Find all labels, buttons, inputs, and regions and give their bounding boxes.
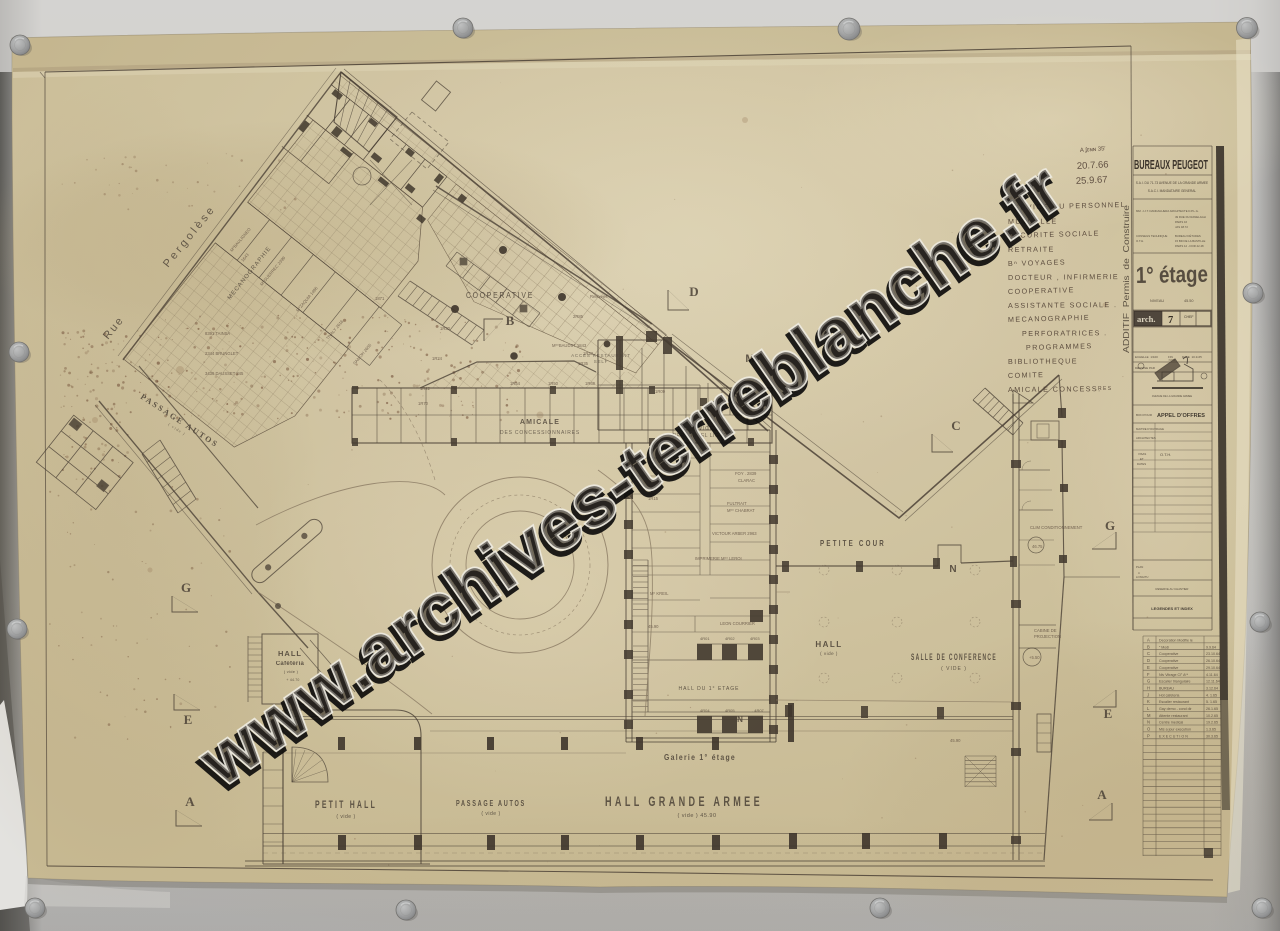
svg-text:8391 TAINSA: 8391 TAINSA bbox=[205, 331, 230, 336]
svg-text:1R70: 1R70 bbox=[418, 401, 429, 406]
svg-text:A: A bbox=[1147, 638, 1150, 643]
svg-text:LEON COURRIER: LEON COURRIER bbox=[720, 621, 755, 626]
svg-text:Centre medical: Centre medical bbox=[1159, 721, 1183, 725]
svg-text:NIVEAU: NIVEAU bbox=[1150, 299, 1164, 303]
svg-text:1R09: 1R09 bbox=[655, 389, 666, 394]
svg-text:Niv Vitrage Cl° Aⁿⁿ: Niv Vitrage Cl° Aⁿⁿ bbox=[1159, 673, 1189, 677]
svg-text:AMICALE: AMICALE bbox=[520, 419, 560, 426]
svg-text:7: 7 bbox=[1168, 315, 1173, 326]
svg-text:arch.: arch. bbox=[1137, 314, 1156, 324]
svg-text:( VIDE ): ( VIDE ) bbox=[941, 666, 967, 672]
svg-text:PLAN: PLAN bbox=[1136, 565, 1143, 569]
svg-text:A: A bbox=[1097, 787, 1107, 802]
svg-text:CHEF: CHEF bbox=[1184, 315, 1194, 319]
svg-text:CONSEILS TECHNIQUE: CONSEILS TECHNIQUE bbox=[1136, 234, 1167, 238]
svg-text:H: H bbox=[1147, 686, 1150, 691]
svg-text:PETITE COUR: PETITE COUR bbox=[820, 538, 886, 548]
svg-text:G: G bbox=[181, 580, 191, 595]
svg-text:CLIM CONDITIONNEMENT: CLIM CONDITIONNEMENT bbox=[1030, 525, 1083, 530]
svg-text:M⁰⁰BAUDST 1843: M⁰⁰BAUDST 1843 bbox=[552, 343, 587, 348]
svg-text:1.3.65: 1.3.65 bbox=[1206, 728, 1216, 732]
svg-text:BUREAUX PEUGEOT: BUREAUX PEUGEOT bbox=[1134, 158, 1208, 172]
svg-text:( vide ): ( vide ) bbox=[820, 651, 838, 656]
svg-text:PROJECTION: PROJECTION bbox=[1034, 634, 1061, 639]
svg-text:LONGITU: LONGITU bbox=[1136, 575, 1148, 579]
svg-text:1R30: 1R30 bbox=[440, 326, 451, 331]
svg-text:IMPRIMERIE M⁰⁰ LEROI: IMPRIMERIE M⁰⁰ LEROI bbox=[695, 556, 742, 561]
svg-text:Hot cafeteria: Hot cafeteria bbox=[1159, 693, 1179, 697]
svg-text:PERFORATRICES .: PERFORATRICES . bbox=[1022, 328, 1108, 338]
svg-text:″ Modi: ″ Modi bbox=[1159, 645, 1169, 649]
svg-text:M⁰⁰ CHABRAT: M⁰⁰ CHABRAT bbox=[727, 508, 755, 513]
svg-text:PROGRAMMES: PROGRAMMES bbox=[1026, 341, 1093, 352]
svg-text:DATES: DATES bbox=[1137, 462, 1146, 466]
svg-text:49 RUE DU RANELAGH: 49 RUE DU RANELAGH bbox=[1175, 215, 1206, 219]
svg-text:N: N bbox=[737, 715, 743, 724]
svg-text:4R04: 4R04 bbox=[700, 708, 710, 713]
svg-text:26.10.64: 26.10.64 bbox=[1206, 659, 1220, 663]
svg-text:4. 1.65: 4. 1.65 bbox=[1206, 693, 1217, 697]
svg-text:FULTRAIT: FULTRAIT bbox=[727, 501, 747, 506]
svg-text:FOY . 2839: FOY . 2839 bbox=[735, 471, 757, 476]
svg-text:BUREAU DÉTUDES: BUREAU DÉTUDES bbox=[1175, 233, 1201, 238]
svg-text:19.2.65: 19.2.65 bbox=[1206, 721, 1218, 725]
svg-text:HALL: HALL bbox=[278, 649, 302, 658]
svg-text:45.90: 45.90 bbox=[648, 624, 659, 629]
svg-text:G: G bbox=[1105, 518, 1115, 533]
svg-text:1° étage: 1° étage bbox=[1136, 261, 1208, 288]
svg-text:RES: RES bbox=[1098, 386, 1112, 392]
svg-text:5. 1.65: 5. 1.65 bbox=[1206, 700, 1217, 704]
svg-text:E: E bbox=[184, 712, 193, 727]
svg-text:AMICALE CONCESS.: AMICALE CONCESS. bbox=[1008, 384, 1102, 394]
svg-text:15 BD DE LA BASTILLE: 15 BD DE LA BASTILLE bbox=[1175, 239, 1205, 243]
svg-text:B: B bbox=[506, 313, 515, 328]
svg-text:C: C bbox=[1147, 651, 1150, 656]
svg-text:ASSISTANTE SOCIALE .: ASSISTANTE SOCIALE . bbox=[1008, 300, 1117, 310]
svg-text:Escalier restaurant: Escalier restaurant bbox=[1159, 700, 1189, 704]
svg-text:M: M bbox=[1147, 713, 1151, 718]
svg-text:Relevées: Relevées bbox=[590, 294, 607, 299]
svg-text:Cooperative: Cooperative bbox=[1159, 652, 1178, 656]
svg-text:4.11.64: 4.11.64 bbox=[1206, 673, 1218, 677]
svg-text:S.A.C.I. MANDATAIRE GENERAL: S.A.C.I. MANDATAIRE GENERAL bbox=[1148, 189, 1197, 193]
svg-text:Cooperative: Cooperative bbox=[1159, 666, 1178, 670]
svg-text:PARIS 16: PARIS 16 bbox=[1175, 220, 1188, 224]
svg-text:4R01: 4R01 bbox=[700, 636, 710, 641]
svg-text:( vide ): ( vide ) bbox=[336, 814, 355, 820]
svg-text:Galerie 1° étage: Galerie 1° étage bbox=[664, 753, 736, 762]
svg-text:BUREAU: BUREAU bbox=[1159, 687, 1174, 691]
svg-text:( vide ): ( vide ) bbox=[481, 811, 500, 817]
svg-text:1R24: 1R24 bbox=[432, 356, 443, 361]
svg-text:45.50: 45.50 bbox=[1184, 299, 1194, 303]
svg-text:4R02: 4R02 bbox=[725, 636, 735, 641]
svg-text:20.7.66: 20.7.66 bbox=[1077, 159, 1109, 172]
svg-text:PARIS 12 - DOR 42.48: PARIS 12 - DOR 42.48 bbox=[1175, 244, 1204, 248]
svg-text:G: G bbox=[1147, 679, 1150, 684]
svg-text:COOPERATIVE: COOPERATIVE bbox=[1008, 285, 1075, 296]
svg-text:MAITRE D’OUVRAGE: MAITRE D’OUVRAGE bbox=[1136, 427, 1164, 431]
svg-text:K: K bbox=[1147, 699, 1150, 704]
svg-text:HALL GRANDE ARMEE: HALL GRANDE ARMEE bbox=[605, 794, 763, 809]
svg-text:D: D bbox=[1147, 658, 1150, 663]
svg-text:Attente restaurant: Attente restaurant bbox=[1159, 714, 1188, 718]
svg-text:30.3.65: 30.3.65 bbox=[1206, 734, 1218, 738]
svg-text:COMITE: COMITE bbox=[1008, 370, 1045, 380]
svg-text:46.75: 46.75 bbox=[1032, 544, 1043, 549]
svg-text:DOCTEUR , INFIRMERIE: DOCTEUR , INFIRMERIE bbox=[1008, 272, 1119, 282]
svg-text:3.12.64: 3.12.64 bbox=[1206, 687, 1218, 691]
svg-text:Escalier triangulaire: Escalier triangulaire bbox=[1159, 680, 1191, 684]
svg-text:SELF: SELF bbox=[594, 359, 608, 364]
svg-text:ACCES RESTAURANT: ACCES RESTAURANT bbox=[571, 353, 631, 358]
svg-text:S.A.I. DU 71-73 AVENUE DE LA G: S.A.I. DU 71-73 AVENUE DE LA GRANDE ARME… bbox=[1136, 181, 1208, 185]
svg-text:PASSAGE AUTOS: PASSAGE AUTOS bbox=[456, 799, 526, 808]
svg-text:P: P bbox=[1147, 733, 1150, 738]
svg-text:ET: ET bbox=[1140, 457, 1144, 461]
svg-text:F: F bbox=[1147, 672, 1150, 677]
svg-text:D: D bbox=[689, 284, 698, 299]
svg-text:VICTOUR ARBER 2963: VICTOUR ARBER 2963 bbox=[712, 531, 757, 536]
svg-text:B: B bbox=[1147, 644, 1150, 649]
svg-text:BON POUR: BON POUR bbox=[1136, 413, 1153, 417]
svg-text:1R54: 1R54 bbox=[510, 381, 521, 386]
svg-text:COOPERATIVE: COOPERATIVE bbox=[466, 291, 534, 300]
svg-text:9.9.64: 9.9.64 bbox=[1206, 645, 1216, 649]
svg-text:2344 BRUNGLET: 2344 BRUNGLET bbox=[205, 351, 239, 356]
svg-text:10.2.65: 10.2.65 bbox=[1206, 714, 1218, 718]
svg-text:( vide ) 45.90: ( vide ) 45.90 bbox=[677, 813, 716, 819]
svg-text:ADDITIF Permis de Construir: ADDITIF Permis de Construire bbox=[1122, 204, 1131, 353]
svg-text:Cooperative: Cooperative bbox=[1159, 659, 1178, 663]
svg-text:Mis a jour execution: Mis a jour execution bbox=[1159, 728, 1191, 732]
svg-text:CABINE DE: CABINE DE bbox=[1034, 628, 1057, 633]
svg-text:MM. J.J.T. DANDAGUERA ARCHITEC: MM. J.J.T. DANDAGUERA ARCHITECTE D.P.L.G… bbox=[1136, 209, 1199, 213]
svg-text:E: E bbox=[1147, 665, 1150, 670]
svg-text:4R05: 4R05 bbox=[725, 708, 735, 713]
svg-text:O.T.H.: O.T.H. bbox=[1160, 452, 1171, 457]
svg-text:45.90: 45.90 bbox=[950, 738, 961, 743]
svg-text:1R22: 1R22 bbox=[420, 386, 431, 391]
svg-text:1R33: 1R33 bbox=[583, 351, 594, 356]
svg-text:12.11.64: 12.11.64 bbox=[1206, 680, 1220, 684]
svg-text:1R35: 1R35 bbox=[578, 361, 589, 366]
svg-text:Decoration Modifie le: Decoration Modifie le bbox=[1159, 639, 1193, 643]
svg-text:HALL: HALL bbox=[815, 640, 842, 649]
svg-text:23.10.64: 23.10.64 bbox=[1206, 652, 1220, 656]
svg-text:3436 DAUSSET 345: 3436 DAUSSET 345 bbox=[205, 371, 244, 376]
svg-text:N: N bbox=[1147, 720, 1150, 725]
svg-text:C: C bbox=[951, 418, 960, 433]
svg-text:LEGENDES ET INDEX: LEGENDES ET INDEX bbox=[1151, 606, 1193, 611]
svg-text:ARCHITECTES: ARCHITECTES bbox=[1136, 436, 1156, 440]
svg-text:4R03: 4R03 bbox=[750, 636, 760, 641]
svg-text:29.10.64: 29.10.64 bbox=[1206, 666, 1220, 670]
svg-text:AVENUE DE LA GRANDE ARMEE: AVENUE DE LA GRANDE ARMEE bbox=[1152, 394, 1192, 398]
svg-text:J: J bbox=[1147, 692, 1149, 697]
svg-text:E X E C U T I O N: E X E C U T I O N bbox=[1159, 734, 1188, 738]
svg-text:1871: 1871 bbox=[375, 296, 385, 301]
svg-text:2R85: 2R85 bbox=[573, 314, 584, 319]
svg-text:PETIT HALL: PETIT HALL bbox=[315, 799, 377, 811]
svg-text:Gay demo - cond dir: Gay demo - cond dir bbox=[1159, 707, 1192, 711]
svg-text:E: E bbox=[1104, 706, 1113, 721]
svg-text:VISAS: VISAS bbox=[1138, 452, 1146, 456]
svg-text:JAS 48.72: JAS 48.72 bbox=[1175, 225, 1188, 229]
svg-text:HALL DU 1° ETAGE: HALL DU 1° ETAGE bbox=[678, 686, 739, 692]
svg-text:1R68: 1R68 bbox=[585, 381, 596, 386]
svg-text:25.9.67: 25.9.67 bbox=[1076, 174, 1108, 187]
svg-text:. 4R07: . 4R07 bbox=[752, 708, 765, 713]
svg-text:APPEL D’OFFRES: APPEL D’OFFRES bbox=[1157, 413, 1205, 419]
svg-text:N: N bbox=[949, 564, 956, 575]
svg-text:M⁰ KREIL: M⁰ KREIL bbox=[650, 591, 669, 596]
svg-text:RESERVE AU CHANTIER: RESERVE AU CHANTIER bbox=[1156, 587, 1189, 591]
svg-text:DES CONCESSIONNAIRES: DES CONCESSIONNAIRES bbox=[500, 430, 580, 436]
svg-text:O.T.H.: O.T.H. bbox=[1136, 239, 1144, 243]
svg-text:SALLE DE CONFERENCE: SALLE DE CONFERENCE bbox=[911, 652, 997, 663]
svg-text:26.1.65: 26.1.65 bbox=[1206, 707, 1218, 711]
svg-text:BIBLIOTHEQUE: BIBLIOTHEQUE bbox=[1008, 356, 1078, 366]
svg-text:NON: NON bbox=[1169, 358, 1176, 362]
svg-text:CLARAC: CLARAC bbox=[738, 478, 755, 483]
svg-text:A: A bbox=[185, 794, 195, 809]
svg-text:ECHELLE 1/100: ECHELLE 1/100 bbox=[1135, 355, 1158, 359]
svg-text:+5.50: +5.50 bbox=[1029, 655, 1040, 660]
svg-text:1R50: 1R50 bbox=[548, 381, 559, 386]
